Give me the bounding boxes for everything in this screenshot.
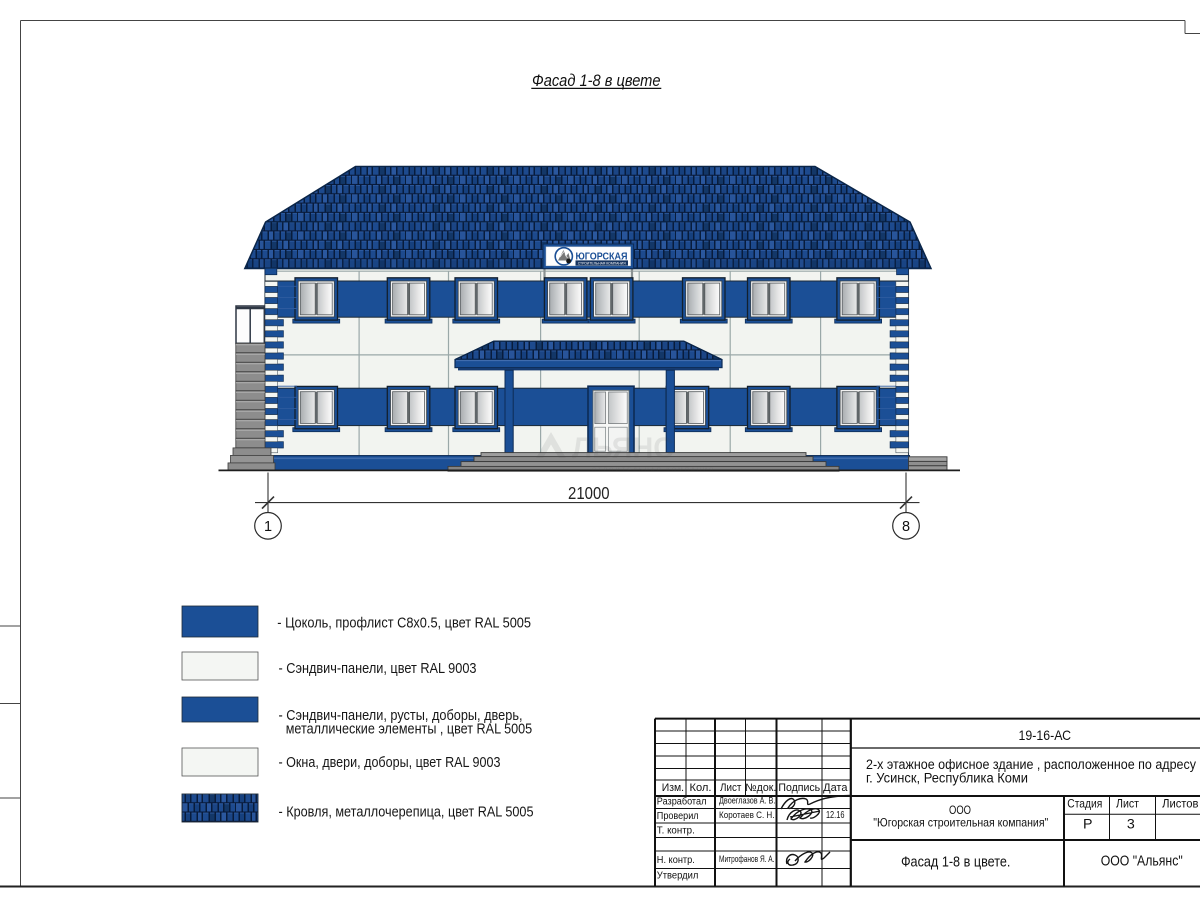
svg-text:- Цоколь, профлист С8х0.5, цве: - Цоколь, профлист С8х0.5, цвет RAL 5005	[277, 614, 531, 631]
svg-text:Дата: Дата	[823, 782, 847, 794]
svg-text:Коротаев С. Н.: Коротаев С. Н.	[719, 810, 775, 820]
svg-text:Изм.: Изм.	[662, 782, 684, 794]
svg-text:Р: Р	[1083, 817, 1092, 833]
svg-text:21000: 21000	[568, 483, 610, 503]
svg-text:8: 8	[902, 519, 910, 535]
svg-text:Лист: Лист	[1116, 797, 1139, 811]
svg-text:Стадия: Стадия	[1067, 797, 1102, 811]
svg-text:- Сэндвич-панели, цвет RAL 900: - Сэндвич-панели, цвет RAL 9003	[279, 660, 477, 677]
svg-text:Подпись: Подпись	[778, 782, 820, 794]
svg-text:ЛЬЯНС: ЛЬЯНС	[572, 432, 674, 465]
svg-text:Кол.: Кол.	[690, 782, 712, 794]
svg-text:СТРОИТЕЛЬНАЯ КОМПАНИЯ: СТРОИТЕЛЬНАЯ КОМПАНИЯ	[592, 468, 715, 474]
svg-text:Листов: Листов	[1162, 797, 1198, 811]
svg-text:- Окна, двери, доборы, цвет RA: - Окна, двери, доборы, цвет RAL 9003	[279, 754, 501, 771]
svg-text:Т. контр.: Т. контр.	[657, 826, 695, 837]
svg-text:- Кровля, металлочерепица, цве: - Кровля, металлочерепица, цвет RAL 5005	[279, 804, 534, 821]
svg-text:Проверил: Проверил	[657, 811, 699, 822]
svg-text:металлические элементы , цвет: металлические элементы , цвет RAL 5005	[286, 721, 533, 738]
svg-text:№док.: №док.	[745, 782, 776, 794]
svg-text:19-16-АС: 19-16-АС	[1019, 727, 1072, 743]
svg-text:Н. контр.: Н. контр.	[657, 855, 695, 866]
svg-text:Фасад 1-8 в цвете.: Фасад 1-8 в цвете.	[901, 855, 1011, 871]
svg-text:Фасад 1-8 в цвете: Фасад 1-8 в цвете	[532, 71, 661, 90]
svg-text:"Югорская строительная компани: "Югорская строительная компания"	[873, 816, 1048, 830]
svg-text:12.16: 12.16	[826, 810, 845, 821]
svg-text:Лист: Лист	[720, 782, 741, 794]
svg-text:Утвердил: Утвердил	[657, 870, 699, 881]
svg-text:ООО "Альянс": ООО "Альянс"	[1101, 853, 1183, 869]
svg-text:г. Усинск, Республика Коми: г. Усинск, Республика Коми	[866, 771, 1028, 787]
svg-text:Разработал: Разработал	[657, 797, 707, 808]
svg-text:СТРОИТЕЛЬНАЯ КОМПАНИЯ: СТРОИТЕЛЬНАЯ КОМПАНИЯ	[578, 261, 627, 265]
svg-text:3: 3	[1127, 817, 1135, 833]
svg-text:Двоеглазов А. В.: Двоеглазов А. В.	[719, 796, 775, 806]
svg-text:1: 1	[264, 519, 272, 535]
svg-text:Митрофанов Я. А.: Митрофанов Я. А.	[719, 854, 775, 864]
